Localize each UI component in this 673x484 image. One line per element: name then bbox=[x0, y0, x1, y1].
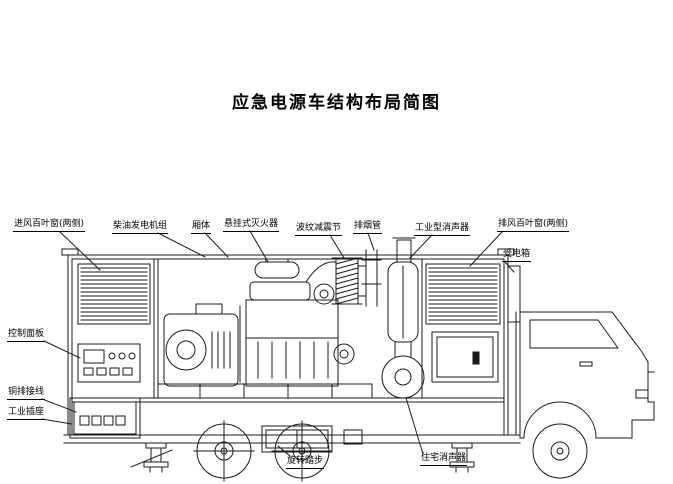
box-body-outline bbox=[62, 249, 514, 435]
front-wheel bbox=[533, 424, 587, 478]
diesel-engine bbox=[240, 262, 354, 386]
alternator bbox=[164, 304, 238, 386]
label-power-box: 受电箱 bbox=[502, 249, 531, 262]
label-genset: 柴油发电机组 bbox=[112, 221, 168, 234]
control-panel-box bbox=[78, 344, 140, 382]
chassis-rails bbox=[64, 435, 520, 443]
label-industrial-muffler: 工业型消声器 bbox=[414, 223, 470, 236]
label-intake-louver: 进风百叶窗(两侧) bbox=[13, 219, 85, 232]
truck-cab bbox=[516, 312, 654, 438]
label-exhaust-pipe: 排烟管 bbox=[353, 221, 382, 234]
socket-panel bbox=[70, 398, 140, 438]
exhaust-louver-panel bbox=[426, 264, 500, 324]
label-box-body: 厢体 bbox=[191, 221, 211, 234]
label-industrial-socket: 工业插座 bbox=[7, 407, 45, 420]
vehicle-structure-drawing bbox=[0, 0, 673, 484]
right-cabinet bbox=[432, 332, 498, 382]
label-exhaust-louver: 排风百叶窗(两侧) bbox=[497, 219, 569, 232]
label-rotating-step: 旋转踏步 bbox=[286, 456, 324, 469]
intake-louver-panel bbox=[78, 264, 150, 324]
label-bellows: 波纹减震节 bbox=[295, 223, 342, 236]
label-control-panel: 控制面板 bbox=[7, 329, 45, 342]
rear-wheel-1 bbox=[194, 421, 254, 481]
power-receiving-box bbox=[508, 266, 520, 322]
diagram-page: 应急电源车结构布局简图 bbox=[0, 0, 673, 484]
fire-extinguisher bbox=[255, 259, 299, 278]
step-box bbox=[262, 426, 362, 452]
outrigger-jack-left bbox=[131, 443, 172, 472]
exhaust-system bbox=[332, 238, 424, 398]
label-busbar-terminal: 铜排接线 bbox=[7, 387, 45, 400]
label-fire-extinguisher: 悬挂式灭火器 bbox=[223, 219, 279, 232]
label-residential-muffler: 住宅消声器 bbox=[420, 453, 467, 466]
